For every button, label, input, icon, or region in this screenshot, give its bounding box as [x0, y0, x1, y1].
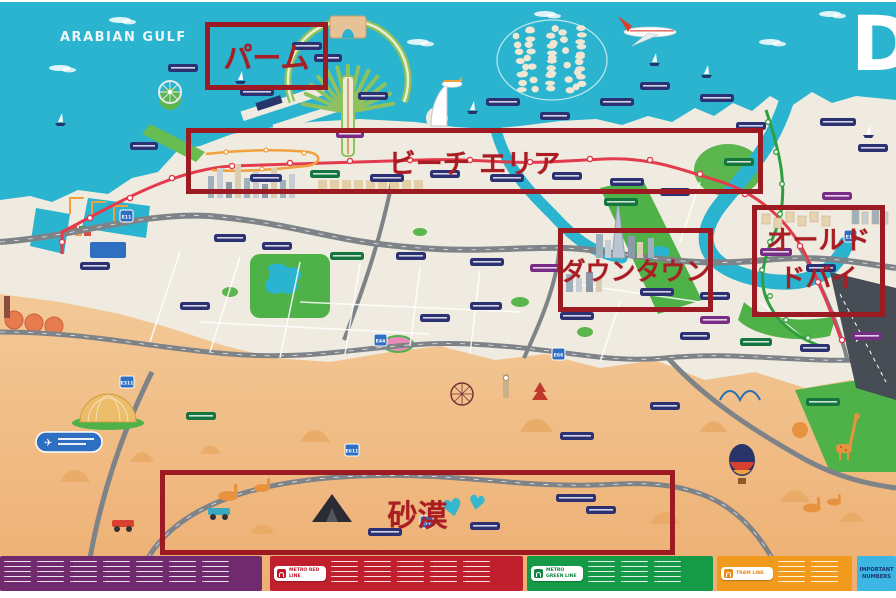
annotation-palm-label: パーム: [223, 35, 309, 77]
metro-green-badge: METRO GREEN LINE: [531, 566, 583, 581]
pill-text-line: [171, 67, 195, 69]
pill-text-line: [183, 305, 207, 307]
pill-text-line: [83, 265, 107, 267]
pill-text-line: [489, 101, 517, 103]
svg-text:E11: E11: [122, 215, 132, 221]
cloud: [832, 14, 846, 19]
pill-text-line: [265, 245, 289, 247]
cloud: [420, 42, 434, 47]
top-border: [0, 0, 896, 2]
island: [520, 71, 528, 78]
island: [547, 59, 557, 64]
pill-text-line: [563, 315, 591, 317]
road-shield: E66: [552, 348, 565, 360]
red-line-station: [59, 239, 64, 244]
island: [560, 36, 568, 43]
legend-list-column: [811, 561, 838, 586]
island: [576, 74, 586, 80]
island: [558, 29, 567, 35]
legend-list-column: [136, 561, 163, 586]
pill-text-line: [361, 95, 385, 97]
legend-important-numbers-block: IMPORTANT NUMBERS: [857, 556, 896, 591]
island: [577, 44, 587, 50]
metro-logo-icon: [534, 569, 543, 578]
annotation-old-dubai-line2: ドバイ: [779, 261, 857, 299]
pill-text-line: [703, 97, 731, 99]
island: [562, 47, 569, 54]
island: [546, 33, 555, 39]
pill-text-line: [533, 267, 557, 269]
pill-text-line: [743, 341, 769, 343]
svg-text:E611: E611: [346, 449, 359, 455]
green-line-station: [766, 120, 771, 125]
pill-text-line: [473, 261, 501, 263]
island: [529, 77, 537, 84]
atlantis-hotel: [330, 16, 366, 38]
metro-logo-icon: [277, 569, 286, 578]
legend-list-column: [202, 561, 229, 586]
legend-list-column: [70, 561, 97, 586]
pill-text-line: [189, 415, 213, 417]
red-line-station: [127, 195, 132, 200]
sea-label: ARABIAN GULF: [60, 30, 187, 45]
legend-list-column: [364, 561, 391, 586]
red-line-station: [839, 337, 844, 342]
legend-tram-block: TRAM LINE: [717, 556, 852, 591]
dwc-sign: ✈: [36, 432, 102, 452]
pill-text-line: [861, 147, 885, 149]
svg-text:E44: E44: [376, 339, 386, 345]
legend-attractions-block: [0, 556, 262, 591]
tram-logo-icon: [724, 569, 733, 578]
metro-green-label: METRO GREEN LINE: [546, 568, 580, 579]
tram-badge: TRAM LINE: [721, 567, 773, 580]
island: [546, 85, 555, 91]
falcon-icon: [792, 422, 808, 438]
red-line-station: [169, 175, 174, 180]
svg-text:E66: E66: [554, 353, 564, 359]
island: [563, 62, 570, 69]
pill-text-line: [607, 201, 635, 203]
annotation-beach-label: ビーチ エリア: [389, 142, 560, 181]
road-shield: E311: [120, 376, 134, 388]
island: [550, 40, 558, 47]
green-line-station: [774, 150, 779, 155]
pill-text-line: [243, 91, 271, 93]
island: [525, 36, 535, 41]
legend-list-column: [103, 561, 130, 586]
island: [546, 65, 555, 71]
legend-list-column: [37, 561, 64, 586]
pill-text-line: [473, 305, 499, 307]
tram-label: TRAM LINE: [736, 571, 770, 577]
island: [514, 41, 522, 48]
pill-text-line: [543, 115, 567, 117]
map-legend: METRO RED LINE METRO GREEN LINE TRAM LIN…: [0, 556, 896, 591]
pill-text-line: [739, 125, 763, 127]
island: [518, 80, 527, 86]
cloud: [772, 42, 786, 47]
island: [517, 87, 527, 92]
pill-text-line: [399, 255, 423, 257]
island: [545, 73, 555, 78]
island: [531, 86, 538, 93]
island: [528, 63, 537, 69]
annotation-desert-label: 砂漠: [388, 491, 448, 535]
pill-text-line: [217, 237, 243, 239]
island: [577, 32, 587, 37]
annotation-downtown-label: ダウンタウン: [561, 252, 711, 288]
island: [576, 25, 586, 31]
road-shield: E44: [374, 334, 387, 346]
road-shield: E611: [345, 444, 359, 456]
metro-red-badge: METRO RED LINE: [274, 566, 326, 581]
cloud: [547, 14, 561, 19]
red-line-station: [87, 215, 92, 220]
pill-text-line: [703, 319, 727, 321]
island: [516, 58, 525, 64]
legend-list-column: [588, 561, 615, 586]
annotation-downtown[interactable]: ダウンタウン: [558, 228, 713, 312]
island: [577, 81, 586, 87]
pill-text-line: [803, 347, 827, 349]
pill-text-line: [333, 255, 361, 257]
pill-text-line: [683, 335, 707, 337]
island: [513, 33, 520, 40]
legend-list-column: [463, 561, 490, 586]
cloud: [122, 20, 136, 25]
pill-text-line: [423, 317, 447, 319]
legend-list-column: [331, 561, 358, 586]
island: [575, 39, 585, 44]
legend-list-column: [654, 561, 681, 586]
island: [525, 41, 533, 48]
island: [545, 81, 555, 86]
pill-text-line: [809, 401, 837, 403]
island: [526, 48, 535, 54]
pill-text-line: [603, 101, 631, 103]
bottom-margin: [0, 591, 896, 598]
green-line-station: [806, 336, 811, 341]
pill-text-line: [825, 195, 849, 197]
pill-text-line: [823, 121, 853, 123]
airplane-icon: ✈: [44, 438, 52, 449]
island: [575, 54, 585, 59]
annotation-old-dubai[interactable]: オールド ドバイ: [752, 205, 885, 317]
pill-text-line: [133, 145, 155, 147]
island: [515, 48, 523, 55]
svg-text:E311: E311: [121, 381, 134, 387]
annotation-desert[interactable]: 砂漠: [160, 470, 675, 555]
annotation-old-dubai-line1: オールド: [766, 223, 870, 261]
metro-red-label: METRO RED LINE: [289, 568, 323, 579]
road-shield: E11: [120, 210, 133, 222]
ain-dubai-wheel: [159, 81, 181, 103]
legend-list-column: [4, 561, 31, 586]
green-line-station: [784, 318, 789, 323]
pill-text-line: [855, 335, 879, 337]
legend-list-column: [621, 561, 648, 586]
annotation-palm[interactable]: パーム: [205, 22, 328, 90]
map-title-letter: D: [851, 6, 896, 82]
island: [552, 25, 559, 32]
island: [575, 59, 583, 65]
port-sign: [90, 242, 126, 258]
dubai-tourist-map-page: ✈ ✈: [0, 0, 896, 598]
legend-list-column: [169, 561, 196, 586]
legend-metro-green-block: METRO GREEN LINE: [527, 556, 713, 591]
annotation-beach-area[interactable]: ビーチ エリア: [186, 128, 763, 194]
pill-text-line: [563, 435, 591, 437]
cloud: [62, 68, 76, 73]
green-line-station: [780, 182, 785, 187]
island: [525, 28, 535, 33]
pill-text-line: [653, 405, 677, 407]
legend-list-column: [397, 561, 424, 586]
island: [565, 76, 573, 83]
important-numbers-label: IMPORTANT NUMBERS: [859, 567, 893, 581]
legend-list-column: [778, 561, 805, 586]
pill-text-line: [643, 85, 667, 87]
legend-list-column: [430, 561, 457, 586]
legend-metro-red-block: METRO RED LINE: [270, 556, 523, 591]
